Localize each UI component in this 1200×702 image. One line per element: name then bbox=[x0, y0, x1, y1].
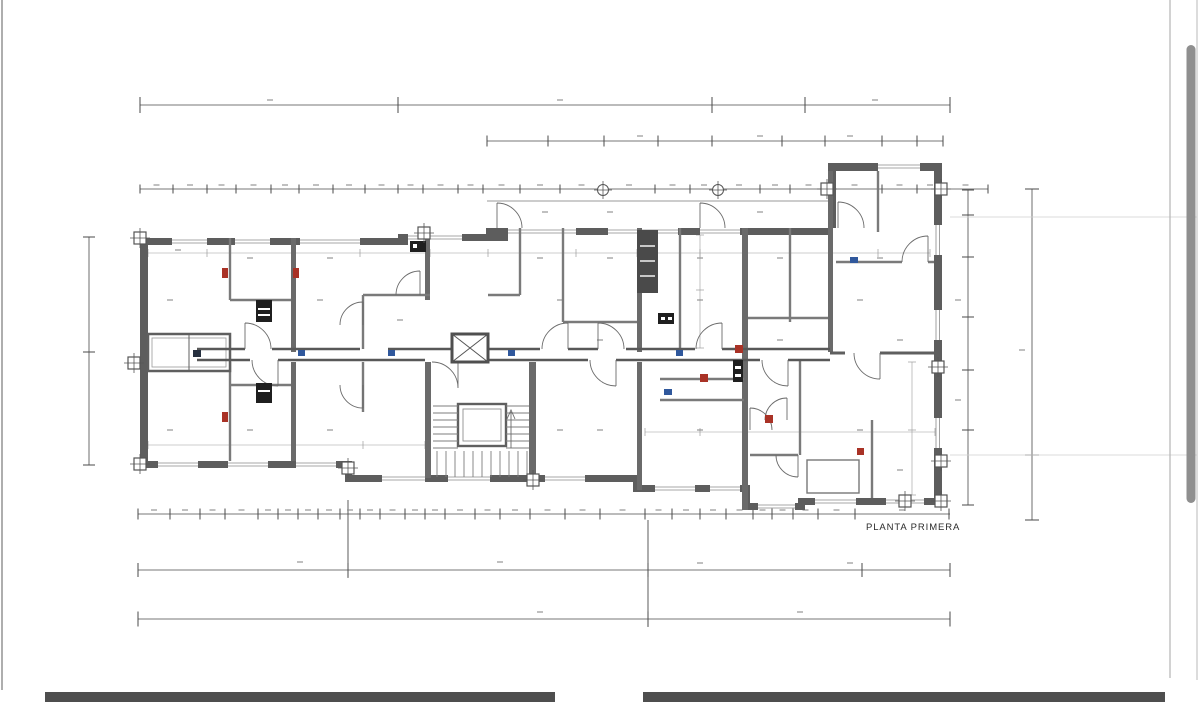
interior-dimension-chains bbox=[148, 235, 935, 495]
interior-walls bbox=[148, 171, 934, 510]
shaft bbox=[637, 230, 658, 293]
elevator bbox=[452, 334, 488, 362]
extension-lines bbox=[950, 217, 1197, 455]
scrollbar-thumb[interactable] bbox=[1187, 45, 1196, 503]
illegible-dimension-text bbox=[151, 99, 1025, 613]
outer-walls bbox=[140, 163, 942, 510]
next-page-fragment-left bbox=[45, 692, 555, 702]
plan-sheet: PLANTA PRIMERA bbox=[83, 97, 1197, 627]
plan-title-label: PLANTA PRIMERA bbox=[866, 522, 960, 533]
document-viewer-page: { "document": { "kind": "architectural-f… bbox=[0, 0, 1200, 702]
floor-plan-drawing: PLANTA PRIMERA bbox=[0, 0, 1200, 702]
red-markers bbox=[222, 268, 864, 455]
stair-direction-arrow bbox=[507, 410, 515, 448]
stairs bbox=[433, 404, 529, 477]
windows bbox=[158, 165, 940, 508]
next-page-fragment-right bbox=[643, 692, 1165, 702]
